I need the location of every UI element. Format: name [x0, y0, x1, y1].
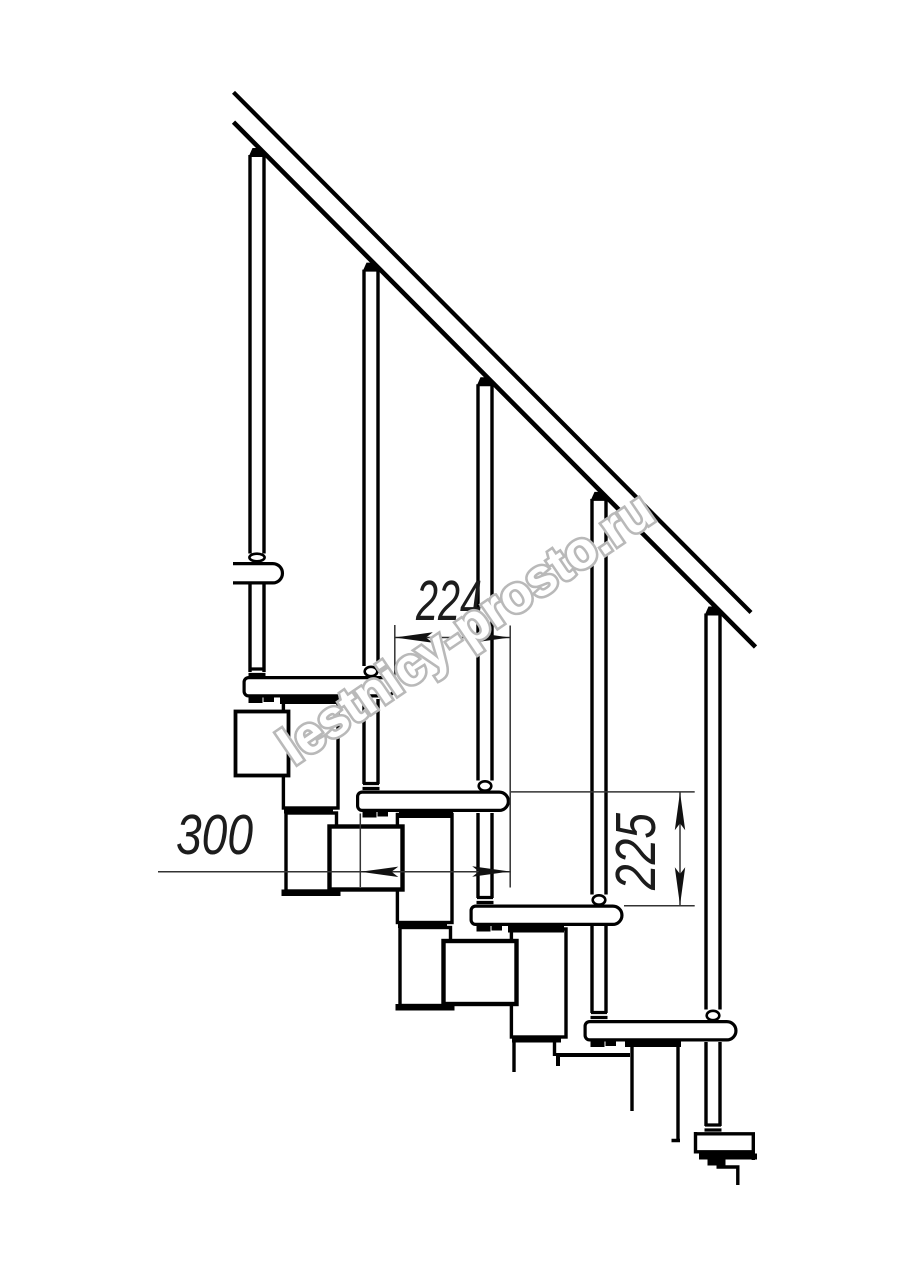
svg-text:225: 225: [604, 813, 668, 891]
svg-text:300: 300: [176, 803, 253, 867]
